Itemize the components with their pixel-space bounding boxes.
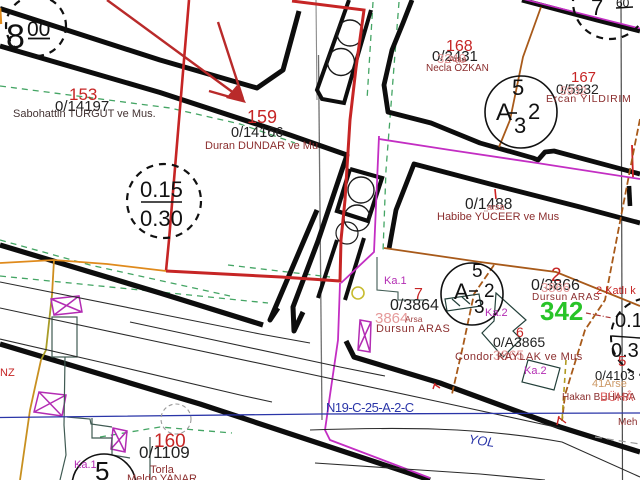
svg-text:Duran DUNDAR ve Mu: Duran DUNDAR ve Mu: [205, 140, 318, 152]
svg-text:0/14166: 0/14166: [231, 125, 283, 141]
svg-text:Dursun ARAS: Dursun ARAS: [376, 323, 450, 335]
svg-text:5: 5: [472, 261, 483, 282]
svg-text:0.1: 0.1: [615, 310, 640, 332]
svg-text:0.15: 0.15: [140, 177, 183, 202]
svg-text:Ka.1: Ka.1: [74, 459, 97, 471]
svg-text:3: 3: [474, 297, 485, 318]
svg-text:Ercan YILDIRIM: Ercan YILDIRIM: [546, 93, 631, 105]
svg-text:N19-C-25-A-2-C: N19-C-25-A-2-C: [326, 400, 414, 415]
svg-text:2: 2: [528, 99, 540, 124]
svg-text:Necla ÖZKAN: Necla ÖZKAN: [426, 62, 489, 74]
svg-text:Meh: Meh: [618, 417, 637, 428]
svg-text:2: 2: [484, 281, 495, 302]
svg-text:Sabohattin TURGUT ve Mus.: Sabohattin TURGUT ve Mus.: [13, 108, 156, 120]
svg-text:8: 8: [6, 18, 25, 56]
svg-text:5: 5: [512, 75, 524, 100]
svg-text:Ka.2: Ka.2: [524, 365, 547, 377]
svg-text:7: 7: [591, 0, 603, 20]
svg-text:5: 5: [95, 456, 109, 480]
svg-text:Condor KAYLAK ve Mus: Condor KAYLAK ve Mus: [455, 351, 583, 363]
svg-text:Ka.2: Ka.2: [485, 307, 508, 319]
svg-text:41Arse: 41Arse: [592, 378, 627, 390]
svg-text:Meldo YANAR: Meldo YANAR: [127, 473, 197, 480]
svg-text:159: 159: [247, 107, 277, 127]
svg-text:Ka.1: Ka.1: [384, 275, 407, 287]
svg-text:A: A: [454, 279, 469, 304]
svg-text:2 Katlı k: 2 Katlı k: [596, 285, 636, 297]
svg-text:Habibe YÜCEER ve Mus: Habibe YÜCEER ve Mus: [437, 211, 560, 223]
svg-text:BÜHÂ: BÜHÂ: [600, 389, 633, 404]
svg-text:NZ: NZ: [0, 367, 15, 379]
svg-text:0/1109: 0/1109: [139, 443, 190, 462]
svg-text:3: 3: [514, 113, 526, 138]
svg-text:342: 342: [540, 296, 583, 326]
svg-text:00: 00: [27, 18, 50, 41]
svg-text:0.30: 0.30: [140, 206, 183, 231]
